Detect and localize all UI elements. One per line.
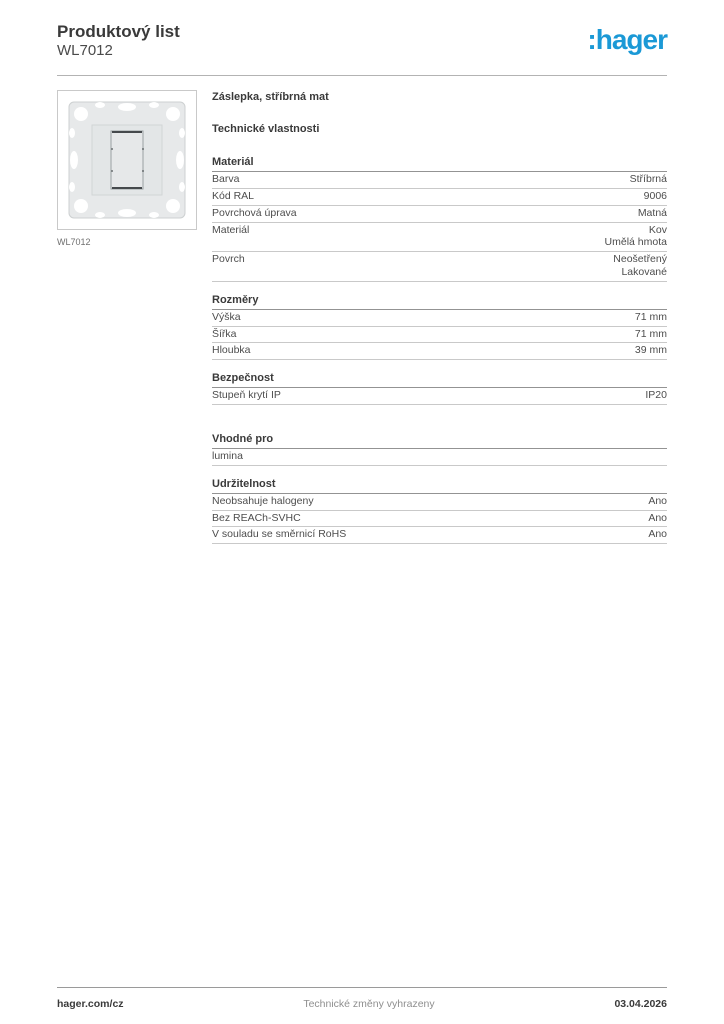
spec-value: 71 mm xyxy=(635,328,667,341)
spec-row: Šířka71 mm xyxy=(212,327,667,344)
spec-section-title: Rozměry xyxy=(212,294,667,310)
spec-row: Povrchová úpravaMatná xyxy=(212,206,667,223)
content-area: WL7012 Záslepka, stříbrná mat Technické … xyxy=(57,90,667,556)
spec-label: Povrchová úprava xyxy=(212,207,297,220)
spec-section: MateriálBarvaStříbrnáKód RAL9006Povrchov… xyxy=(212,156,667,282)
spec-label: lumina xyxy=(212,450,243,463)
spec-value: Stříbrná xyxy=(630,173,667,186)
spec-label: Výška xyxy=(212,311,241,324)
spec-value: 39 mm xyxy=(635,344,667,357)
spec-section: UdržitelnostNeobsahuje halogenyAnoBez RE… xyxy=(212,478,667,544)
spec-label: V souladu se směrnicí RoHS xyxy=(212,528,346,541)
product-image-caption: WL7012 xyxy=(57,237,197,247)
spec-value: 71 mm xyxy=(635,311,667,324)
spec-row: V souladu se směrnicí RoHSAno xyxy=(212,527,667,544)
spec-row: MateriálKovUmělá hmota xyxy=(212,223,667,253)
spec-value: Ano xyxy=(648,528,667,541)
spec-value: KovUmělá hmota xyxy=(605,224,667,250)
product-details-column: Záslepka, stříbrná mat Technické vlastno… xyxy=(212,90,667,556)
spec-value: Matná xyxy=(638,207,667,220)
spec-section-title: Udržitelnost xyxy=(212,478,667,494)
spec-value: IP20 xyxy=(645,389,667,402)
footer-date: 03.04.2026 xyxy=(614,998,667,1010)
spec-label: Barva xyxy=(212,173,239,186)
spec-section-title: Bezpečnost xyxy=(212,372,667,388)
spec-row: Bez REACh-SVHCAno xyxy=(212,511,667,528)
spec-row: Neobsahuje halogenyAno xyxy=(212,494,667,511)
header-text-block: Produktový list WL7012 xyxy=(57,22,180,61)
hager-logo: :hager xyxy=(587,26,667,54)
spec-row: Výška71 mm xyxy=(212,310,667,327)
spec-section-title: Vhodné pro xyxy=(212,433,667,449)
spec-sections: MateriálBarvaStříbrnáKód RAL9006Povrchov… xyxy=(212,156,667,544)
spec-row: BarvaStříbrná xyxy=(212,172,667,189)
spec-label: Materiál xyxy=(212,224,249,237)
product-name: Záslepka, stříbrná mat xyxy=(212,91,667,103)
spec-row: Stupeň krytí IPIP20 xyxy=(212,388,667,405)
spec-value: Ano xyxy=(648,512,667,525)
footer-divider xyxy=(57,987,667,988)
spec-row: Kód RAL9006 xyxy=(212,189,667,206)
spec-label: Povrch xyxy=(212,253,245,266)
spec-value: NeošetřenýLakované xyxy=(613,253,667,279)
spec-row: PovrchNeošetřenýLakované xyxy=(212,252,667,282)
spec-label: Kód RAL xyxy=(212,190,254,203)
product-image xyxy=(57,90,197,230)
spec-section: RozměryVýška71 mmŠířka71 mmHloubka39 mm xyxy=(212,294,667,360)
product-image-column: WL7012 xyxy=(57,90,197,556)
footer-disclaimer: Technické změny vyhrazeny xyxy=(303,998,434,1010)
spec-label: Stupeň krytí IP xyxy=(212,389,281,402)
spec-value: 9006 xyxy=(644,190,667,203)
spec-section: Vhodné prolumina xyxy=(212,433,667,466)
header-divider xyxy=(57,75,667,76)
technical-properties-title: Technické vlastnosti xyxy=(212,123,667,135)
spec-row: lumina xyxy=(212,449,667,466)
spec-label: Hloubka xyxy=(212,344,251,357)
product-code: WL7012 xyxy=(57,42,180,61)
page-footer: hager.com/cz Technické změny vyhrazeny 0… xyxy=(57,987,667,1010)
spec-section: BezpečnostStupeň krytí IPIP20 xyxy=(212,372,667,405)
spec-label: Neobsahuje halogeny xyxy=(212,495,314,508)
page-title: Produktový list xyxy=(57,22,180,42)
blank-cover-plate-icon xyxy=(58,91,196,229)
footer-website-link[interactable]: hager.com/cz xyxy=(57,998,124,1010)
spec-label: Bez REACh-SVHC xyxy=(212,512,301,525)
spec-label: Šířka xyxy=(212,328,237,341)
page-header: Produktový list WL7012 :hager xyxy=(57,22,667,61)
product-datasheet-page: Produktový list WL7012 :hager xyxy=(0,0,724,1024)
spec-section-title: Materiál xyxy=(212,156,667,172)
spec-row: Hloubka39 mm xyxy=(212,343,667,360)
footer-row: hager.com/cz Technické změny vyhrazeny 0… xyxy=(57,998,667,1010)
spec-value: Ano xyxy=(648,495,667,508)
